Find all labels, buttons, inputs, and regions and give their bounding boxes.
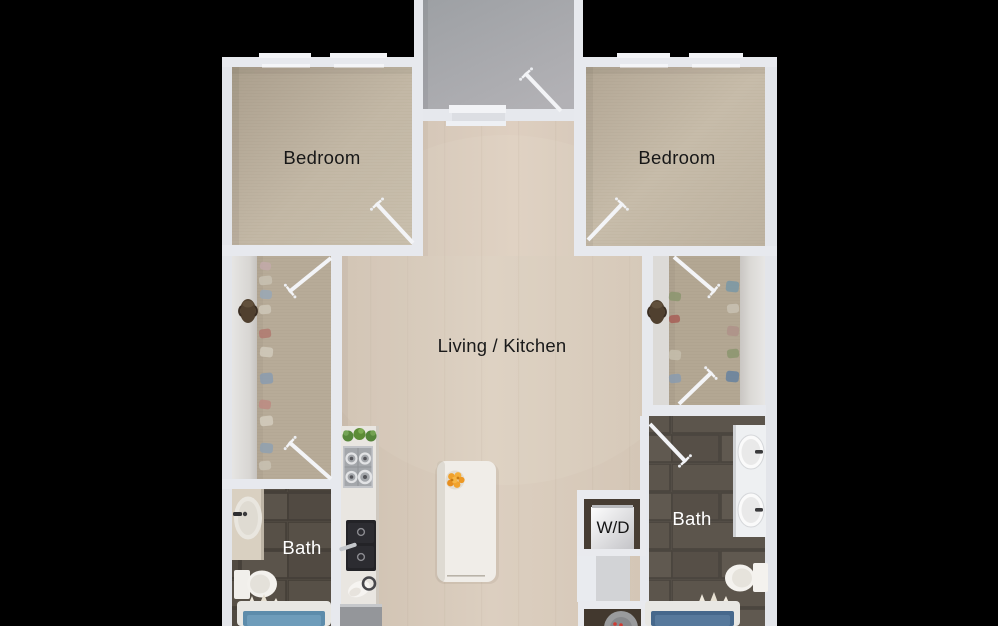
svg-text:W/D: W/D — [596, 518, 629, 537]
svg-text:Bedroom: Bedroom — [638, 147, 715, 168]
svg-text:Bath: Bath — [672, 508, 711, 529]
svg-text:Bath: Bath — [282, 537, 321, 558]
svg-text:Living / Kitchen: Living / Kitchen — [438, 335, 567, 356]
svg-text:Bedroom: Bedroom — [283, 147, 360, 168]
